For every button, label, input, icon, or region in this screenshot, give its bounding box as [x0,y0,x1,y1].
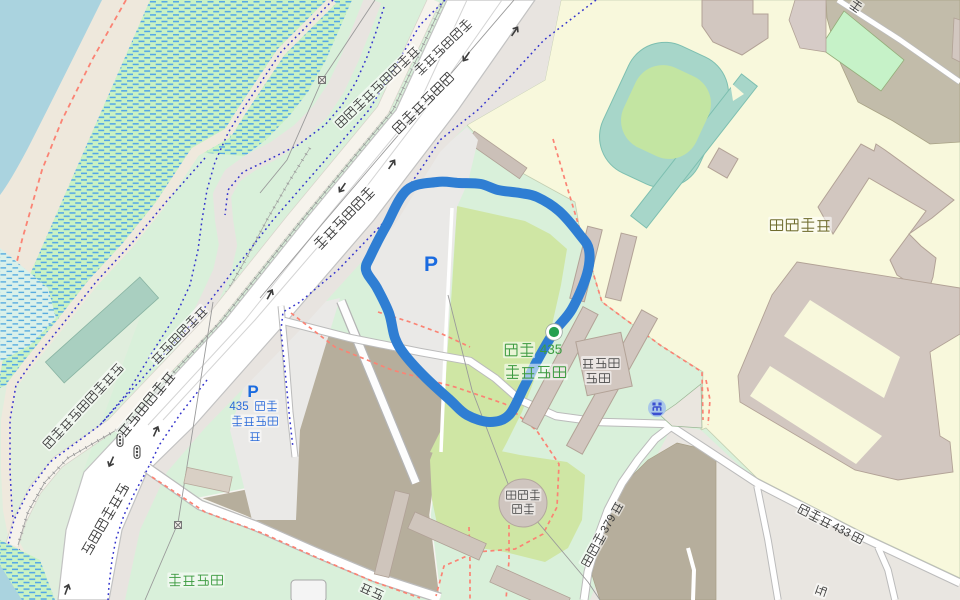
svg-text:435: 435 [540,342,563,357]
svg-text:435: 435 [229,401,248,413]
svg-text:P: P [424,253,438,276]
svg-text:P: P [247,382,258,401]
